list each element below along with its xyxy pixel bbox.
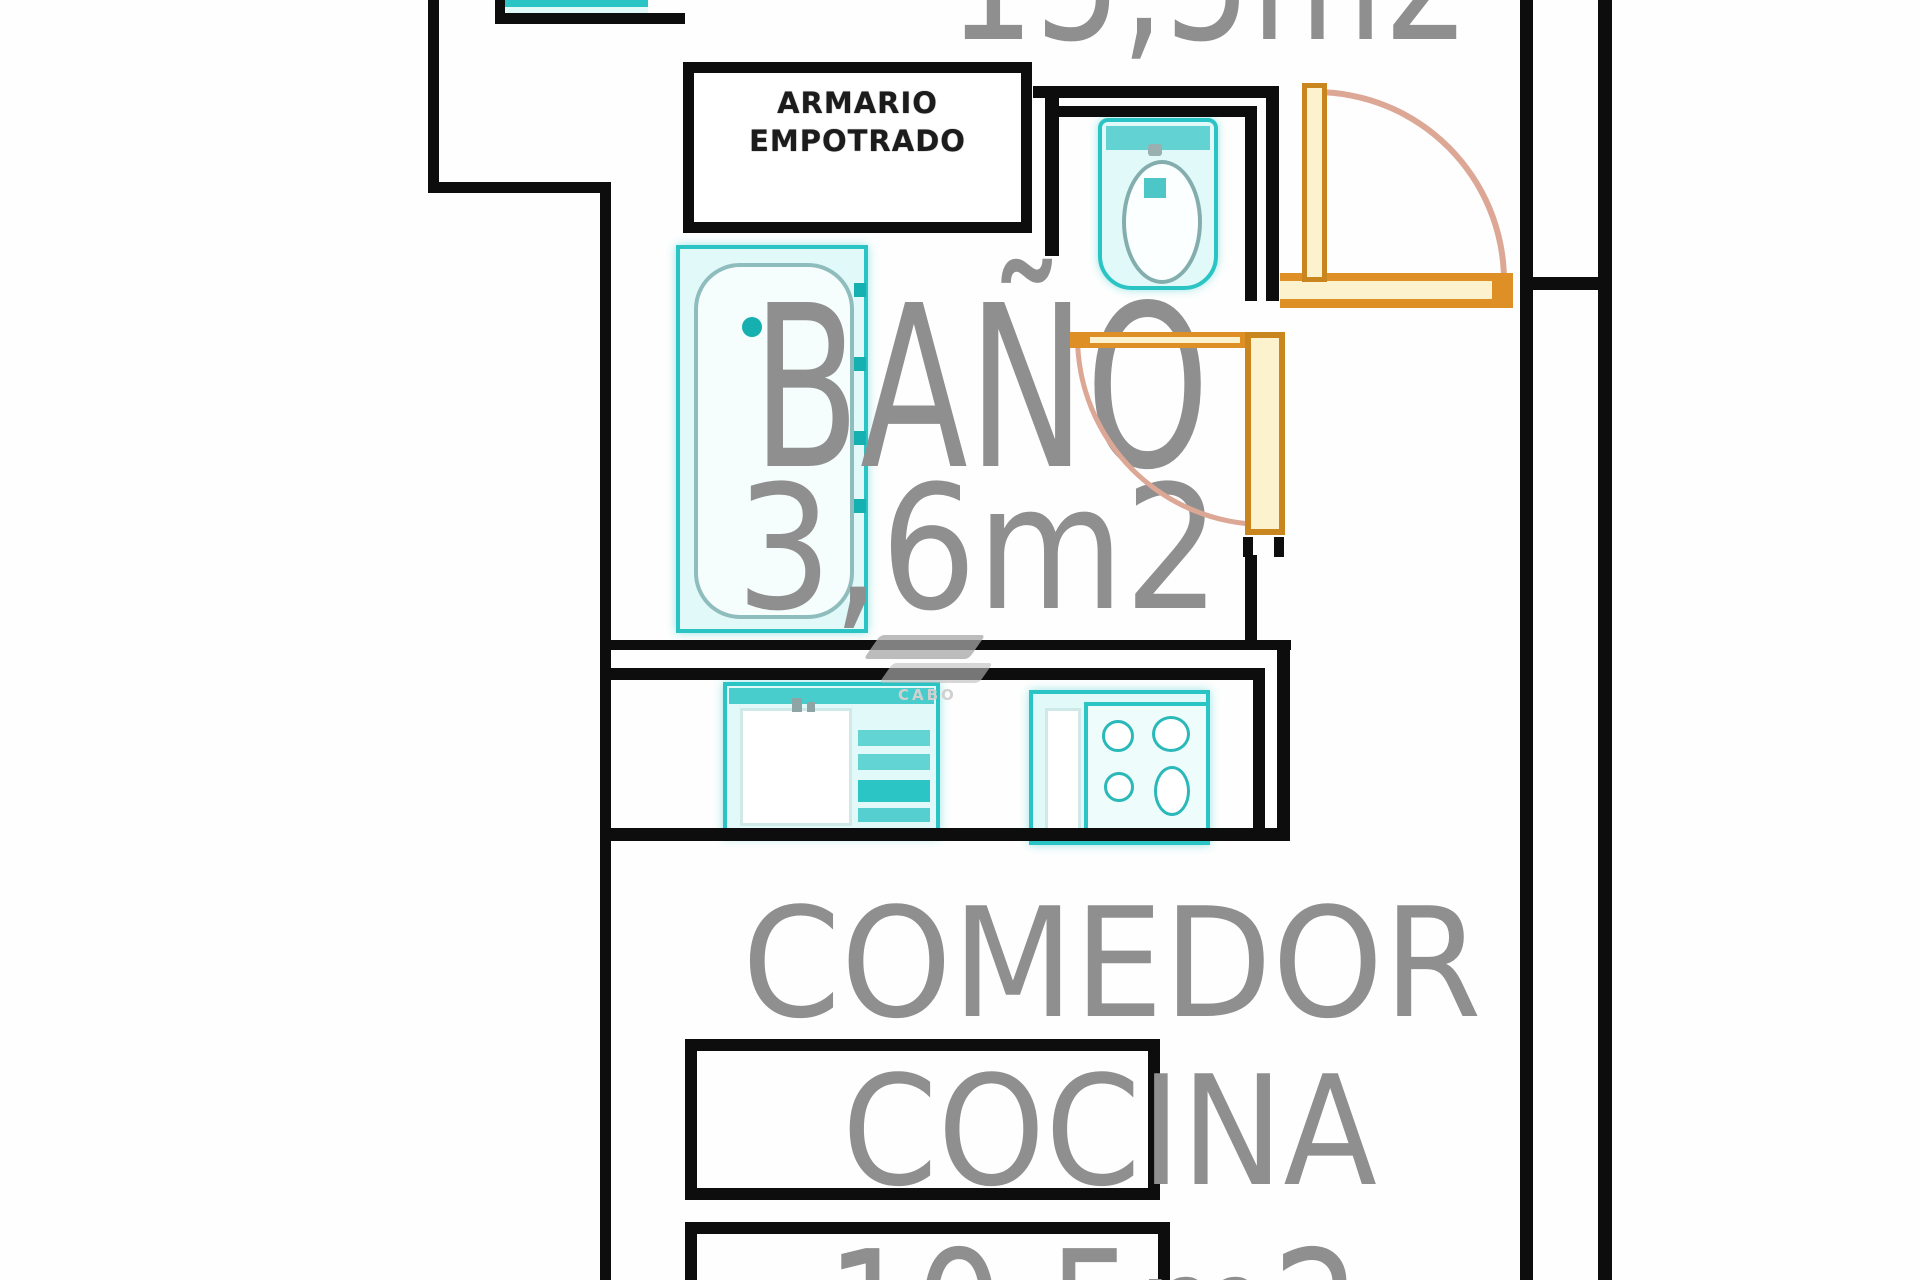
wall-segment <box>1045 98 1059 256</box>
wall-segment <box>1245 555 1257 648</box>
door-frame-jamb <box>1492 273 1513 308</box>
wall-segment <box>495 13 685 24</box>
burner-icon <box>1152 716 1190 752</box>
wall-segment <box>685 1039 697 1200</box>
wall-segment <box>1274 537 1284 557</box>
watermark-text: CABO <box>898 686 957 704</box>
living-kitchen-area-label: 10,5m2 <box>826 1229 1361 1280</box>
toilet-flush-icon <box>1148 144 1162 156</box>
closet-label-line1: ARMARIO <box>694 84 1021 122</box>
floor-plan: ARMARIO EMPOTRADO <box>0 0 1920 1280</box>
wall-segment <box>1277 640 1290 841</box>
wall-segment <box>1533 277 1598 290</box>
wall-segment <box>1253 668 1265 830</box>
wall-segment <box>1243 537 1253 557</box>
wall-segment <box>1245 106 1257 301</box>
closet-label-line2: EMPOTRADO <box>694 122 1021 160</box>
living-kitchen-label-line1: COMEDOR <box>742 888 1482 1040</box>
wall-segment <box>1266 86 1279 301</box>
wall-segment <box>428 0 439 193</box>
door-leaf <box>1302 83 1327 282</box>
closet-label: ARMARIO EMPOTRADO <box>694 84 1021 160</box>
burner-icon <box>1102 720 1134 752</box>
door-leaf <box>1245 332 1285 535</box>
stove-fixture <box>1029 690 1210 845</box>
wall-segment <box>1033 86 1278 98</box>
sink-faucet-icon <box>792 698 802 712</box>
wall-segment <box>600 182 611 1280</box>
wall-segment <box>1058 106 1248 117</box>
wall-segment <box>1598 0 1612 1280</box>
living-kitchen-label-line2: COCINA <box>842 1056 1377 1208</box>
door-swing-arc <box>1315 89 1507 281</box>
wall-segment <box>610 828 1290 841</box>
burner-icon <box>1104 772 1134 802</box>
cut-fixture-strip <box>505 0 648 13</box>
wall-segment <box>428 182 611 193</box>
burner-icon <box>1154 766 1190 816</box>
wall-segment <box>685 1222 697 1280</box>
wall-segment <box>1520 0 1533 1280</box>
upper-room-area-label: 15,5m2 <box>948 0 1470 66</box>
